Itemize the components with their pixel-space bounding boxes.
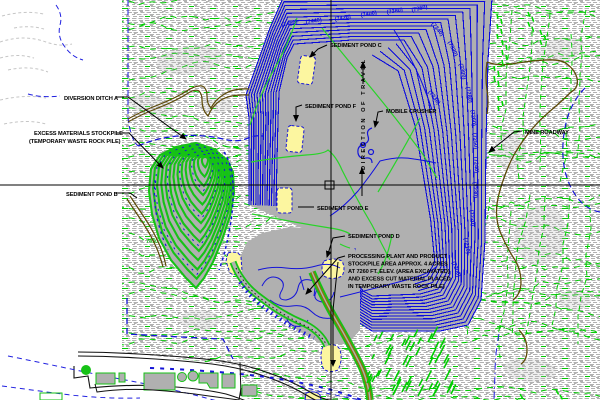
svg-text:SEDIMENT POND D: SEDIMENT POND D (348, 234, 400, 240)
svg-text:SEDIMENT POND F: SEDIMENT POND F (305, 104, 357, 110)
svg-text:PROCESSING PLANT AND PRODUCT: PROCESSING PLANT AND PRODUCT (348, 254, 448, 260)
svg-text:EXCESS MATERIALS STOCKPILE: EXCESS MATERIALS STOCKPILE (34, 131, 123, 137)
svg-text:AND EXCESS CUT MATERIAL PLACED: AND EXCESS CUT MATERIAL PLACED (348, 277, 451, 283)
svg-text:AT 7260 FT. ELEV. (AREA EXCAVA: AT 7260 FT. ELEV. (AREA EXCAVATED) (348, 269, 450, 275)
svg-text:MOBILE CRUSHER: MOBILE CRUSHER (386, 109, 436, 115)
svg-text:(7240): (7240) (472, 157, 479, 174)
svg-text:IN TEMPORARY WASTE ROCK PILE): IN TEMPORARY WASTE ROCK PILE) (348, 284, 445, 290)
svg-text:(7230): (7230) (471, 182, 478, 199)
svg-text:(TEMPORARY WASTE ROCK PILE): (TEMPORARY WASTE ROCK PILE) (29, 139, 121, 145)
svg-text:DIVERSION DITCH A: DIVERSION DITCH A (64, 96, 118, 102)
svg-text:SEDIMENT POND B: SEDIMENT POND B (66, 192, 118, 198)
svg-text:SEDIMENT POND C: SEDIMENT POND C (330, 43, 382, 49)
svg-text:DIRECTION OF TRAVEL: DIRECTION OF TRAVEL (361, 59, 367, 170)
svg-text:MINE ROADWAY: MINE ROADWAY (525, 130, 569, 136)
svg-text:SEDIMENT POND E: SEDIMENT POND E (317, 206, 369, 212)
svg-text:STOCKPILE AREA APPROX. 4 ACRES: STOCKPILE AREA APPROX. 4 ACRES (348, 262, 448, 268)
